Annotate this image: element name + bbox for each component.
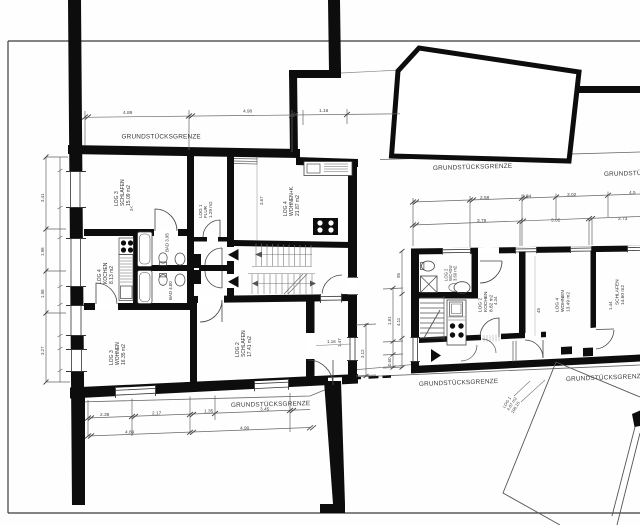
svg-text:GRUNDSTÜ: GRUNDSTÜ (604, 169, 640, 178)
svg-text:17.41 m2: 17.41 m2 (247, 336, 253, 357)
svg-text:BAD 3.95: BAD 3.95 (165, 233, 170, 252)
svg-text:4.5: 4.5 (629, 190, 636, 196)
svg-text:0.60: 0.60 (387, 357, 392, 366)
svg-text:45: 45 (536, 308, 541, 313)
svg-text:1.47: 1.47 (337, 338, 342, 347)
svg-text:3.60 m2: 3.60 m2 (453, 265, 458, 281)
svg-text:GRUNDSTÜCKSGRENZE: GRUNDSTÜCKSGRENZE (122, 133, 201, 141)
svg-text:8.13 m2: 8.13 m2 (109, 266, 115, 284)
svg-text:95: 95 (396, 273, 401, 278)
svg-text:4.89: 4.89 (125, 430, 135, 436)
svg-text:3.67: 3.67 (259, 196, 264, 205)
svg-text:4.90: 4.90 (243, 109, 253, 115)
svg-text:1.98: 1.98 (40, 289, 45, 298)
svg-text:KOCHEN: KOCHEN (483, 291, 489, 312)
svg-text:4.90: 4.90 (240, 426, 250, 432)
svg-text:21.87 m2: 21.87 m2 (295, 195, 301, 216)
svg-text:LOG 2: LOG 2 (478, 298, 484, 312)
svg-text:1.16: 1.16 (319, 108, 329, 114)
svg-text:1.44: 1.44 (608, 301, 613, 310)
svg-text:4.11: 4.11 (396, 317, 401, 326)
svg-text:BAD 4.00: BAD 4.00 (168, 281, 173, 300)
svg-text:3.12: 3.12 (360, 349, 365, 358)
svg-text:3.82: 3.82 (551, 218, 561, 224)
svg-text:15.09 m2: 15.09 m2 (126, 185, 132, 206)
svg-text:4.34: 4.34 (493, 296, 498, 305)
svg-text:13.49 m2: 13.49 m2 (566, 292, 572, 312)
svg-text:3.41: 3.41 (40, 193, 45, 202)
svg-text:1.84: 1.84 (522, 194, 532, 200)
svg-text:3.78: 3.78 (477, 218, 487, 224)
svg-text:SCHLAFEN: SCHLAFEN (615, 279, 621, 305)
svg-text:2<: 2< (129, 206, 134, 211)
svg-text:16.35 m2: 16.35 m2 (121, 344, 127, 365)
svg-text:LOG 4: LOG 4 (555, 298, 561, 312)
svg-text:1.29 m2: 1.29 m2 (208, 201, 213, 218)
svg-text:14.60 m2: 14.60 m2 (620, 285, 626, 305)
svg-text:2.58: 2.58 (480, 195, 490, 201)
svg-text:2.73: 2.73 (618, 216, 628, 222)
svg-text:3.02: 3.02 (567, 192, 577, 198)
svg-text:1.98: 1.98 (40, 247, 45, 256)
svg-text:2.38: 2.38 (100, 412, 110, 418)
svg-text:4.89: 4.89 (123, 110, 133, 116)
svg-text:2.17: 2.17 (152, 411, 162, 417)
svg-text:1.81: 1.81 (387, 316, 392, 325)
svg-text:1.16: 1.16 (327, 339, 336, 344)
svg-text:1.35: 1.35 (204, 409, 214, 415)
svg-text:WOHNEN: WOHNEN (560, 290, 566, 312)
svg-text:3.27: 3.27 (40, 346, 45, 355)
